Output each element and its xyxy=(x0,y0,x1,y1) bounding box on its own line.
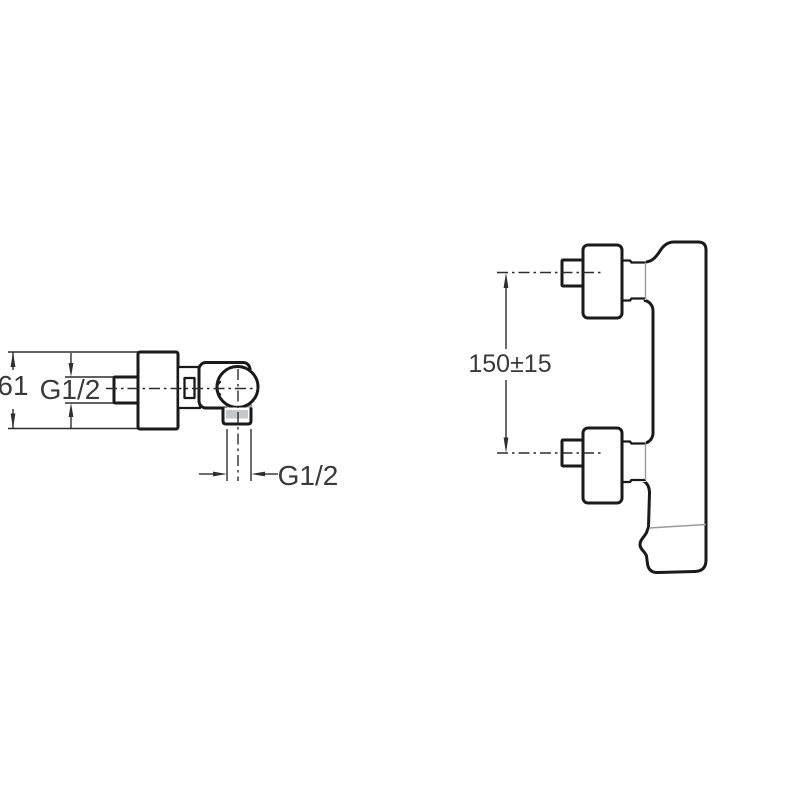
arrowhead-down-icon xyxy=(504,438,509,454)
side-view: 61 G1/2 xyxy=(0,352,338,491)
arrowhead-up-icon xyxy=(11,352,16,367)
front-view: 150±15 xyxy=(468,242,706,573)
faucet-side-profile xyxy=(106,352,258,481)
height-dim-label: 61 xyxy=(0,370,29,401)
arrowhead-up-icon xyxy=(69,403,74,417)
arrowhead-up-icon xyxy=(504,273,509,289)
arrowhead-down-icon xyxy=(11,414,16,429)
technical-drawing-canvas: 61 G1/2 xyxy=(0,0,800,800)
inlet-spacing-label: 150±15 xyxy=(468,350,551,378)
top-inlet xyxy=(562,245,646,318)
dimension-inlet-spacing: 150±15 xyxy=(468,273,551,454)
arrowhead-left-icon xyxy=(251,472,265,477)
inlet-thread-label: G1/2 xyxy=(40,374,101,405)
dimension-outlet-thread: G1/2 xyxy=(199,429,338,491)
outlet-thread-label: G1/2 xyxy=(278,460,339,491)
neck-fill xyxy=(622,442,646,483)
wall-escutcheon xyxy=(138,352,178,429)
inlet-nut xyxy=(114,377,138,403)
wall-escutcheon xyxy=(583,245,622,318)
bottom-inlet xyxy=(562,428,646,503)
wall-escutcheon xyxy=(583,428,622,503)
arrowhead-right-icon xyxy=(213,472,227,477)
outlet-thread-band xyxy=(226,410,248,419)
neck-fill xyxy=(622,261,646,301)
body-left-edge xyxy=(645,301,653,444)
